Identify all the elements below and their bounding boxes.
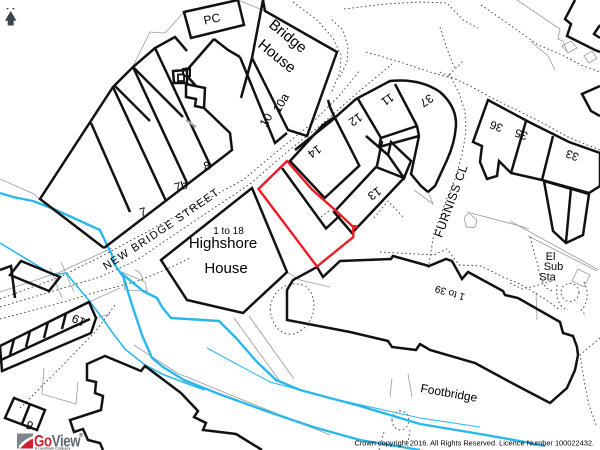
svg-text:Highshore: Highshore (189, 235, 257, 252)
svg-text:®: ® (79, 432, 83, 439)
svg-text:Crown copyright 2016. All Righ: Crown copyright 2016. All Rights Reserve… (354, 439, 594, 448)
svg-text:House: House (204, 260, 247, 277)
svg-text:Sta: Sta (539, 272, 556, 284)
